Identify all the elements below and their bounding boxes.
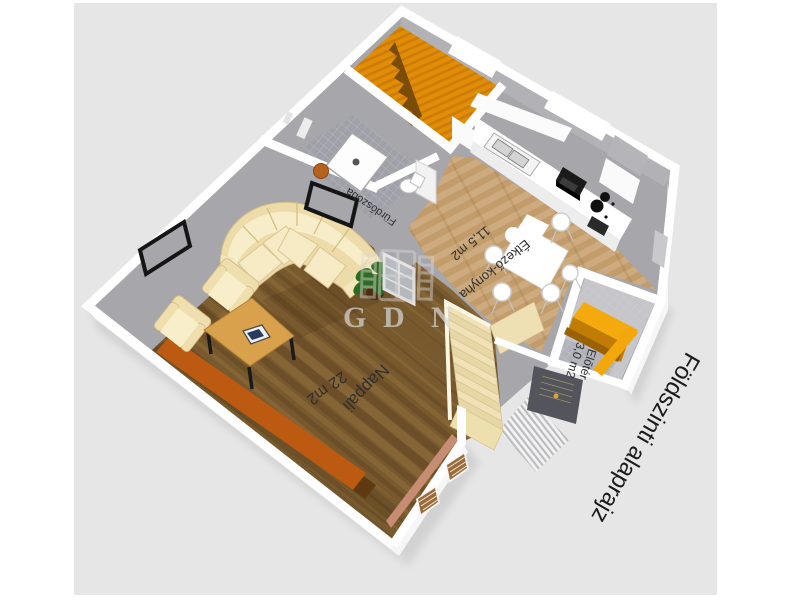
svg-text:D: D <box>383 301 405 334</box>
svg-text:N: N <box>431 301 453 334</box>
svg-text:G: G <box>343 301 366 334</box>
